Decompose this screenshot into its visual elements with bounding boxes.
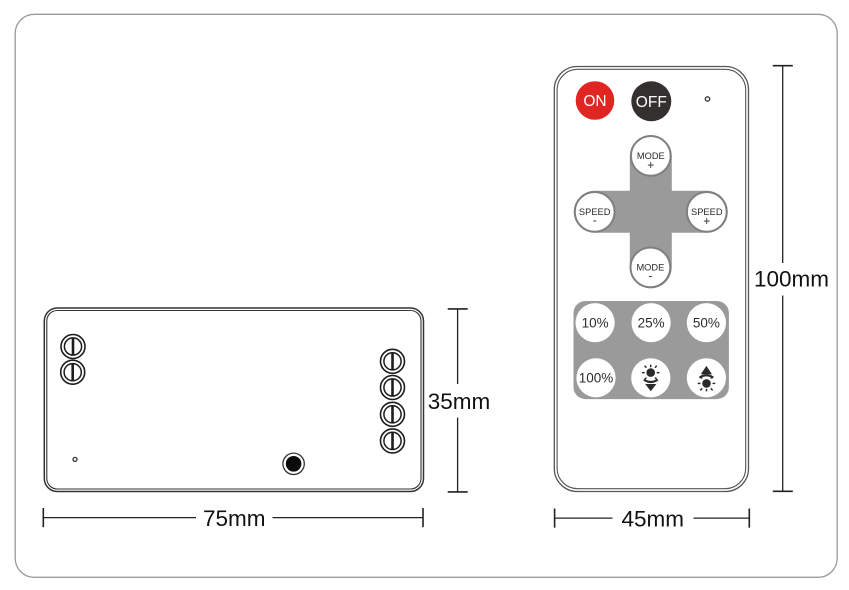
svg-text:100mm: 100mm — [754, 267, 829, 292]
svg-text:50%: 50% — [693, 316, 720, 331]
svg-text:35mm: 35mm — [428, 389, 491, 414]
svg-text:45mm: 45mm — [622, 506, 685, 531]
svg-text:75mm: 75mm — [203, 506, 266, 531]
svg-text:100%: 100% — [579, 371, 614, 386]
svg-text:+: + — [703, 214, 710, 228]
svg-text:+: + — [647, 158, 654, 172]
svg-text:ON: ON — [583, 93, 606, 110]
svg-text:-: - — [648, 268, 652, 282]
svg-text:25%: 25% — [638, 316, 665, 331]
svg-text:10%: 10% — [582, 316, 609, 331]
svg-text:OFF: OFF — [636, 94, 667, 111]
svg-text:-: - — [593, 213, 597, 227]
